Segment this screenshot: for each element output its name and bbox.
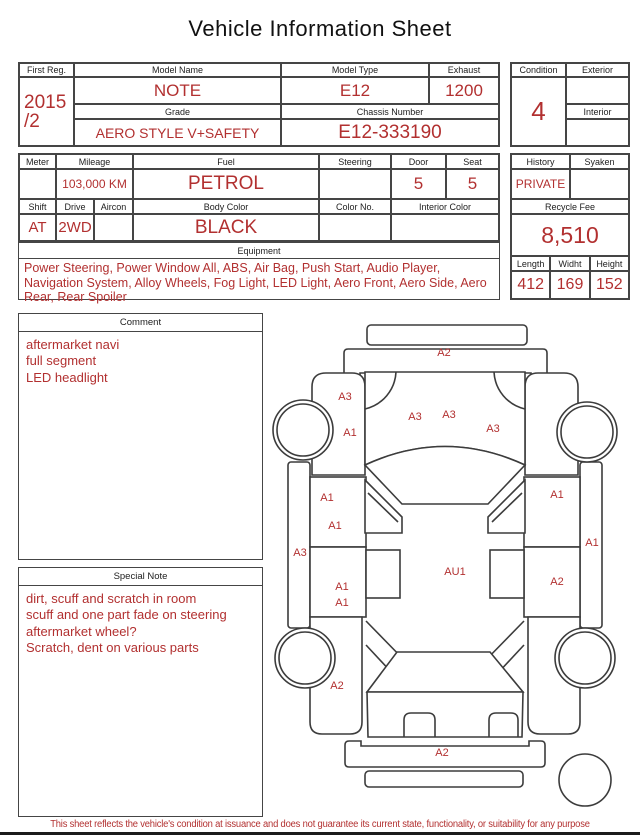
length-label: Length [511, 256, 550, 271]
height-label: Height [590, 256, 629, 271]
rear-right-wheel [555, 628, 615, 688]
rear-window-shape [367, 652, 523, 692]
damage-mark-a1: A1 [328, 520, 341, 532]
damage-mark-a3: A3 [442, 409, 455, 421]
damage-mark-a2: A2 [435, 747, 448, 759]
special-note-label: Special Note [19, 568, 262, 586]
interior-color-label: Interior Color [391, 199, 499, 214]
special-note-line: dirt, scuff and scratch in room [26, 591, 255, 607]
seat-value: 5 [446, 169, 499, 199]
door-value: 5 [391, 169, 446, 199]
recycle-fee-value: 8,510 [511, 214, 629, 256]
condition-table: Condition 4 Exterior Interior [510, 62, 630, 147]
condition-value: 4 [511, 77, 566, 146]
rear-left-wheel [275, 628, 335, 688]
history-value: PRIVATE [511, 169, 570, 199]
aircon-label: Aircon [94, 199, 133, 214]
syaken-value [570, 169, 629, 199]
grade-value: AERO STYLE V+SAFETY [74, 119, 281, 146]
body-color-label: Body Color [133, 199, 319, 214]
body-color-value: BLACK [133, 214, 319, 241]
front-left-door-shape [310, 477, 366, 547]
first-reg-label: First Reg. [19, 63, 74, 77]
exhaust-label: Exhaust [429, 63, 499, 77]
special-note-line: scuff and one part fade on steering [26, 607, 255, 623]
rear-lower-bar-shape [365, 771, 523, 787]
disclaimer-text: This sheet reflects the vehicle's condit… [19, 819, 621, 830]
damage-mark-a1: A1 [320, 492, 333, 504]
model-name-label: Model Name [74, 63, 281, 77]
front-right-wheel [557, 402, 617, 462]
equipment-box: Equipment Power Steering, Power Window A… [18, 242, 500, 300]
special-note-text: dirt, scuff and scratch in room scuff an… [19, 586, 262, 661]
comment-line: full segment [26, 353, 255, 369]
damage-mark-a1: A1 [550, 489, 563, 501]
meter-value [19, 169, 56, 199]
chassis-number-value: E12-333190 [281, 119, 499, 146]
seat-label: Seat [446, 154, 499, 169]
damage-mark-a3: A3 [338, 391, 351, 403]
width-value: 169 [550, 271, 589, 299]
damage-mark-a1: A1 [585, 537, 598, 549]
front-right-door-shape [524, 477, 580, 547]
spare-tire [559, 754, 611, 806]
special-note-line: Scratch, dent on various parts [26, 640, 255, 656]
damage-mark-au1: AU1 [444, 566, 465, 578]
mileage-value: 103,000 KM [56, 169, 133, 199]
first-reg-year: 2015 [24, 93, 66, 112]
syaken-label: Syaken [570, 154, 629, 169]
door-label: Door [391, 154, 446, 169]
trunk-shape [367, 692, 523, 737]
damage-mark-a1: A1 [335, 597, 348, 609]
drive-label: Drive [56, 199, 94, 214]
exterior-label: Exterior [566, 63, 629, 77]
length-value: 412 [511, 271, 550, 299]
mileage-label: Mileage [56, 154, 133, 169]
aircon-value [94, 214, 133, 241]
first-reg-month: /2 [24, 112, 40, 131]
special-note-box: Special Note dirt, scuff and scratch in … [18, 567, 263, 817]
front-left-wheel [273, 400, 333, 460]
comment-text: aftermarket navi full segment LED headli… [19, 332, 262, 391]
model-name-value: NOTE [74, 77, 281, 104]
recycle-fee-label: Recycle Fee [511, 199, 629, 214]
damage-mark-a3: A3 [293, 547, 306, 559]
windshield-shape [365, 447, 525, 505]
equipment-text: Power Steering, Power Window All, ABS, A… [19, 259, 499, 307]
comment-box: Comment aftermarket navi full segment LE… [18, 313, 263, 560]
comment-line: LED headlight [26, 370, 255, 386]
damage-mark-a2: A2 [550, 576, 563, 588]
vehicle-identity-table: First Reg. 2015 /2 Model Name NOTE Model… [18, 62, 500, 147]
color-no-value [319, 214, 391, 241]
height-value: 152 [590, 271, 629, 299]
comment-line: aftermarket navi [26, 337, 255, 353]
steering-label: Steering [319, 154, 391, 169]
history-dimensions-table: History Syaken PRIVATE Recycle Fee 8,510… [510, 153, 630, 300]
fuel-label: Fuel [133, 154, 319, 169]
rear-right-window-shape [490, 550, 524, 598]
condition-label: Condition [511, 63, 566, 77]
color-no-label: Color No. [319, 199, 391, 214]
comment-label: Comment [19, 314, 262, 332]
meter-label: Meter [19, 154, 56, 169]
damage-mark-a2: A2 [437, 347, 450, 359]
damage-mark-a3: A3 [408, 411, 421, 423]
vehicle-damage-diagram: A2A3A1A3A3A3A1A1A3A1A1AU1A1A1A2A2A2 [272, 315, 635, 815]
rear-left-window-shape [366, 550, 400, 598]
special-note-line: aftermarket wheel? [26, 624, 255, 640]
damage-mark-a3: A3 [486, 423, 499, 435]
interior-color-value [391, 214, 499, 241]
steering-value [319, 169, 391, 199]
left-sill-shape [288, 462, 310, 628]
first-reg-value: 2015 /2 [19, 77, 74, 146]
page-title: Vehicle Information Sheet [0, 16, 640, 42]
shift-value: AT [19, 214, 56, 241]
interior-value [566, 119, 629, 146]
history-label: History [511, 154, 570, 169]
width-label: Widht [550, 256, 589, 271]
fuel-value: PETROL [133, 169, 319, 199]
damage-mark-a2: A2 [330, 680, 343, 692]
damage-mark-a1: A1 [335, 581, 348, 593]
chassis-number-label: Chassis Number [281, 104, 499, 119]
vehicle-spec-table: Meter Mileage Fuel Steering Door Seat 10… [18, 153, 500, 242]
model-type-label: Model Type [281, 63, 429, 77]
front-grille-shape [367, 325, 527, 345]
equipment-label: Equipment [19, 243, 499, 259]
grade-label: Grade [74, 104, 281, 119]
drive-value: 2WD [56, 214, 94, 241]
exterior-value [566, 77, 629, 104]
model-type-value: E12 [281, 77, 429, 104]
exhaust-value: 1200 [429, 77, 499, 104]
shift-label: Shift [19, 199, 56, 214]
damage-mark-a1: A1 [343, 427, 356, 439]
interior-label: Interior [566, 104, 629, 119]
